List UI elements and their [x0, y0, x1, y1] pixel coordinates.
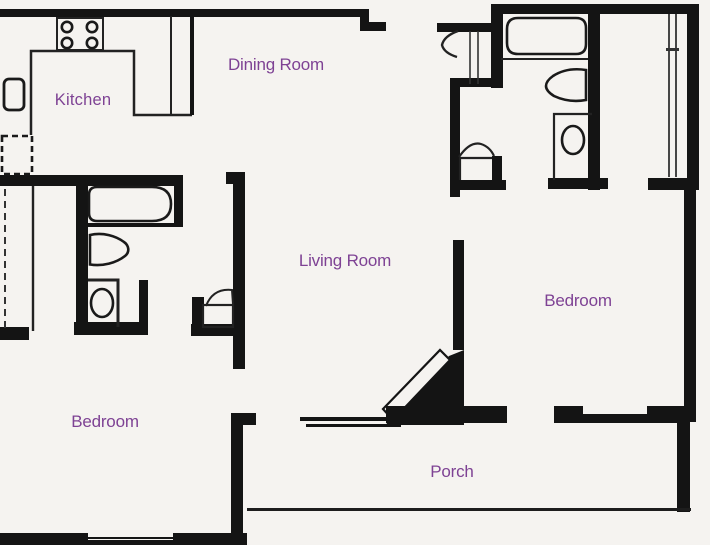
- svg-text:Dining Room: Dining Room: [228, 55, 324, 74]
- svg-text:Kitchen: Kitchen: [55, 91, 111, 109]
- svg-text:Bedroom: Bedroom: [71, 412, 139, 431]
- svg-text:Bedroom: Bedroom: [544, 291, 612, 310]
- svg-text:Porch: Porch: [430, 462, 473, 481]
- svg-text:Living Room: Living Room: [299, 251, 391, 270]
